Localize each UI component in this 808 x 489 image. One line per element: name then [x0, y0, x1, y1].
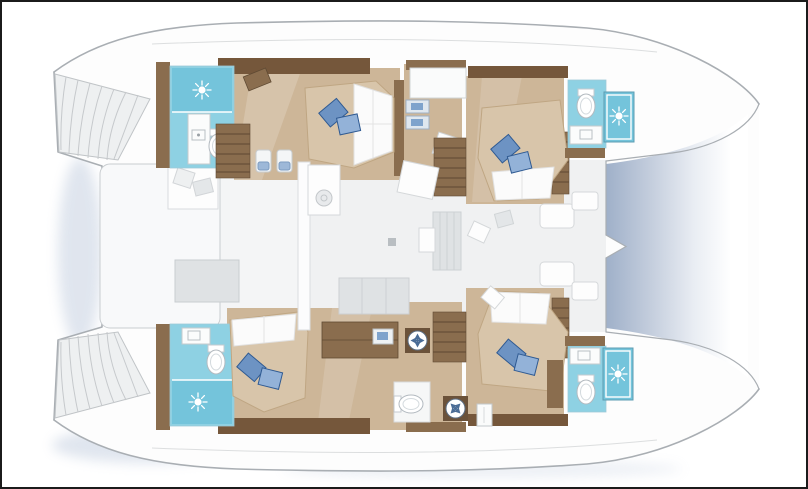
shower-head-icon [193, 81, 211, 99]
bed [305, 81, 394, 168]
bed [230, 312, 308, 412]
toilet [394, 395, 423, 413]
stool [277, 150, 292, 172]
shower-head-icon [610, 107, 628, 125]
chart-table [397, 161, 439, 200]
pillow [337, 114, 361, 135]
toilet [577, 89, 595, 118]
sun-lounge [168, 163, 218, 209]
stairs [434, 138, 466, 196]
sink [182, 328, 210, 344]
shower-head-icon [609, 365, 627, 383]
rug [433, 212, 461, 270]
cabinet [156, 62, 170, 168]
wardrobe [547, 360, 563, 408]
catamaran-floor-plan [2, 2, 808, 489]
wardrobe-starboard-aft [218, 418, 370, 434]
wardrobe-port-fwd [468, 66, 568, 78]
stool [256, 150, 271, 172]
stairs [216, 124, 250, 178]
shower-head-icon [189, 393, 207, 411]
cabinet [565, 148, 605, 158]
bulkhead [394, 80, 404, 176]
shower [603, 348, 633, 400]
cabinet [156, 324, 170, 430]
sink [188, 114, 210, 164]
shower [172, 380, 232, 424]
washing-machine-icon [408, 331, 427, 350]
cockpit-table [175, 260, 239, 302]
shower [604, 92, 634, 142]
sink [570, 126, 602, 144]
galley-island [308, 165, 340, 215]
toilet [207, 345, 225, 374]
aft-deck [100, 163, 239, 328]
trim [406, 422, 466, 432]
cockpit-floor [220, 160, 310, 332]
floor-plan-image [0, 0, 808, 489]
sideboard [322, 322, 398, 358]
side-table [419, 228, 435, 252]
sofa [339, 278, 409, 314]
cabinet [565, 336, 605, 346]
mast-step [388, 238, 396, 246]
desk [410, 68, 466, 98]
stairs [433, 312, 466, 362]
toilet [577, 375, 595, 404]
wardrobe-port-aft [218, 58, 370, 74]
toilet-room [394, 382, 430, 422]
sink [570, 348, 600, 364]
bathroom-starboard-aft [156, 324, 234, 430]
